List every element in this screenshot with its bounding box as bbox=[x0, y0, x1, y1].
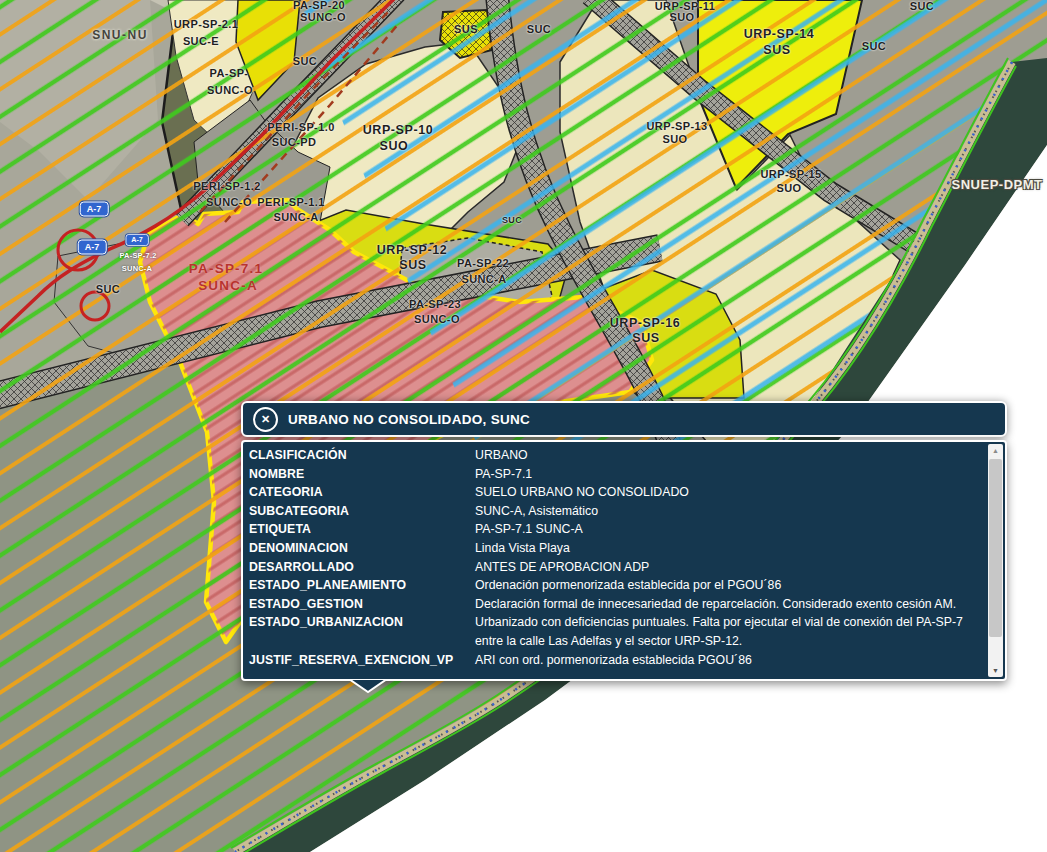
info-row: CATEGORIASUELO URBANO NO CONSOLIDADO bbox=[249, 483, 983, 502]
info-row-value: ANTES DE APROBACION ADP bbox=[475, 558, 983, 577]
info-row-value: Urbanizado con deficiencias puntuales. F… bbox=[475, 613, 983, 650]
map-label: SUS bbox=[454, 23, 478, 35]
map-label: PERI-SP-1.2 bbox=[193, 180, 260, 192]
map-label: SUC-E bbox=[183, 35, 219, 47]
info-row-label: ESTADO_GESTION bbox=[249, 595, 475, 614]
info-row-value: PA-SP-7.1 bbox=[475, 465, 983, 484]
map-label: URP-SP-10 bbox=[363, 123, 434, 137]
map-label: PA-SP-20 bbox=[293, 0, 345, 11]
info-row-value: PA-SP-7.1 SUNC-A bbox=[475, 520, 983, 539]
map-label: SUNC-A bbox=[273, 211, 318, 223]
info-row-label: DENOMINACION bbox=[249, 539, 475, 558]
map-label: URP-SP-2.1 bbox=[174, 18, 239, 30]
map-label: URP-SP-13 bbox=[646, 120, 707, 132]
map-label: SUC-PD bbox=[272, 136, 317, 148]
map-label: PA-SP-22 bbox=[457, 257, 509, 269]
close-icon[interactable]: ✕ bbox=[253, 407, 278, 432]
map-label: SUNC-O bbox=[414, 313, 460, 325]
popup-title: URBANO NO CONSOLIDADO, SUNC bbox=[288, 412, 530, 427]
info-row: NOMBREPA-SP-7.1 bbox=[249, 465, 983, 484]
map-label: SUNC-A bbox=[461, 273, 506, 285]
map-label: URP-SP-16 bbox=[610, 316, 681, 330]
info-row-label: CATEGORIA bbox=[249, 483, 475, 502]
map-label: SUO bbox=[380, 139, 409, 153]
info-row-label: SUBCATEGORIA bbox=[249, 502, 475, 521]
road-shield: A-7 bbox=[126, 234, 149, 246]
map-label: SUO bbox=[662, 133, 687, 145]
map-label: SUNC-O bbox=[300, 11, 346, 23]
info-row-value: ARI con ord. pormenorizada establecida P… bbox=[475, 651, 983, 670]
attribute-table: CLASIFICACIÓNURBANONOMBREPA-SP-7.1CATEGO… bbox=[249, 446, 983, 669]
info-row-value: Linda Vista Playa bbox=[475, 539, 983, 558]
map-label: SUC bbox=[293, 55, 317, 67]
info-row-value: SUELO URBANO NO CONSOLIDADO bbox=[475, 483, 983, 502]
map-label: SUNC-O bbox=[207, 84, 253, 96]
map-label: SUNC-A bbox=[122, 264, 152, 273]
map-label: SNUEP-DPMT bbox=[952, 177, 1043, 192]
info-row-label: DESARROLLADO bbox=[249, 558, 475, 577]
map-label: SUO bbox=[776, 182, 801, 194]
popup-header: ✕ URBANO NO CONSOLIDADO, SUNC bbox=[241, 401, 1007, 437]
info-row: DENOMINACIONLinda Vista Playa bbox=[249, 539, 983, 558]
map-label: SUS bbox=[763, 43, 791, 57]
map-label: SUNC-A bbox=[198, 278, 258, 293]
map-label: SNU-NU bbox=[92, 28, 148, 42]
map-label: SUC bbox=[910, 0, 934, 12]
info-row: SUBCATEGORIASUNC-A, Asistemático bbox=[249, 502, 983, 521]
scroll-down-icon[interactable]: ▼ bbox=[988, 664, 1003, 677]
info-row-value: Declaración formal de innecesariedad de … bbox=[475, 595, 983, 614]
popup-body: CLASIFICACIÓNURBANONOMBREPA-SP-7.1CATEGO… bbox=[241, 440, 1007, 681]
popup-pointer bbox=[348, 679, 388, 694]
info-row: ESTADO_URBANIZACIONUrbanizado con defici… bbox=[249, 613, 983, 650]
map-label: SUNC-O bbox=[206, 196, 252, 208]
info-popup: ✕ URBANO NO CONSOLIDADO, SUNC CLASIFICAC… bbox=[241, 401, 1007, 681]
map-label: SUS bbox=[399, 258, 427, 272]
map-label: SUC bbox=[502, 215, 522, 225]
map-label: PA-SP-23 bbox=[409, 298, 461, 310]
scroll-up-icon[interactable]: ▲ bbox=[988, 444, 1003, 457]
info-row: DESARROLLADOANTES DE APROBACION ADP bbox=[249, 558, 983, 577]
map-label: SUC bbox=[527, 23, 551, 35]
map-viewer: SNU-NUURP-SP-2.1SUC-EPA-SP-20SUNC-OPA-SP… bbox=[0, 0, 1047, 852]
info-row: CLASIFICACIÓNURBANO bbox=[249, 446, 983, 465]
info-row-label: CLASIFICACIÓN bbox=[249, 446, 475, 465]
map-label: SUC bbox=[96, 283, 120, 295]
map-label: URP-SP-15 bbox=[760, 168, 821, 180]
info-row-label: ETIQUETA bbox=[249, 520, 475, 539]
map-label: URP-SP-14 bbox=[744, 27, 815, 41]
info-row-value: Ordenación pormenorizada establecida por… bbox=[475, 576, 983, 595]
scrollbar-thumb[interactable] bbox=[989, 459, 1002, 637]
map-label: URP-SP-12 bbox=[377, 243, 448, 257]
info-row-value: URBANO bbox=[475, 446, 983, 465]
scrollbar[interactable]: ▲ ▼ bbox=[988, 444, 1003, 677]
info-row-label: NOMBRE bbox=[249, 465, 475, 484]
map-label: SUS bbox=[632, 331, 660, 345]
map-label: PA-SP-7.1 bbox=[189, 261, 263, 276]
info-row: ETIQUETAPA-SP-7.1 SUNC-A bbox=[249, 520, 983, 539]
info-row-label: JUSTIF_RESERVA_EXENCION_VP bbox=[249, 651, 475, 670]
info-row: ESTADO_GESTIONDeclaración formal de inne… bbox=[249, 595, 983, 614]
map-label: PERI-SP-1.1 bbox=[257, 196, 324, 208]
info-row: ESTADO_PLANEAMIENTOOrdenación pormenoriz… bbox=[249, 576, 983, 595]
map-label: SUO bbox=[669, 11, 694, 23]
map-label: PA-SP-7.2 bbox=[119, 251, 156, 260]
map-label: PA-SP- bbox=[210, 67, 249, 79]
road-shield: A-7 bbox=[78, 240, 107, 255]
map-label: SUC bbox=[862, 40, 886, 52]
info-row-label: ESTADO_URBANIZACION bbox=[249, 613, 475, 650]
info-row-label: ESTADO_PLANEAMIENTO bbox=[249, 576, 475, 595]
map-label: PERI-SP-1.0 bbox=[267, 121, 334, 133]
info-row: JUSTIF_RESERVA_EXENCION_VPARI con ord. p… bbox=[249, 651, 983, 670]
road-shield: A-7 bbox=[80, 202, 109, 217]
info-row-value: SUNC-A, Asistemático bbox=[475, 502, 983, 521]
